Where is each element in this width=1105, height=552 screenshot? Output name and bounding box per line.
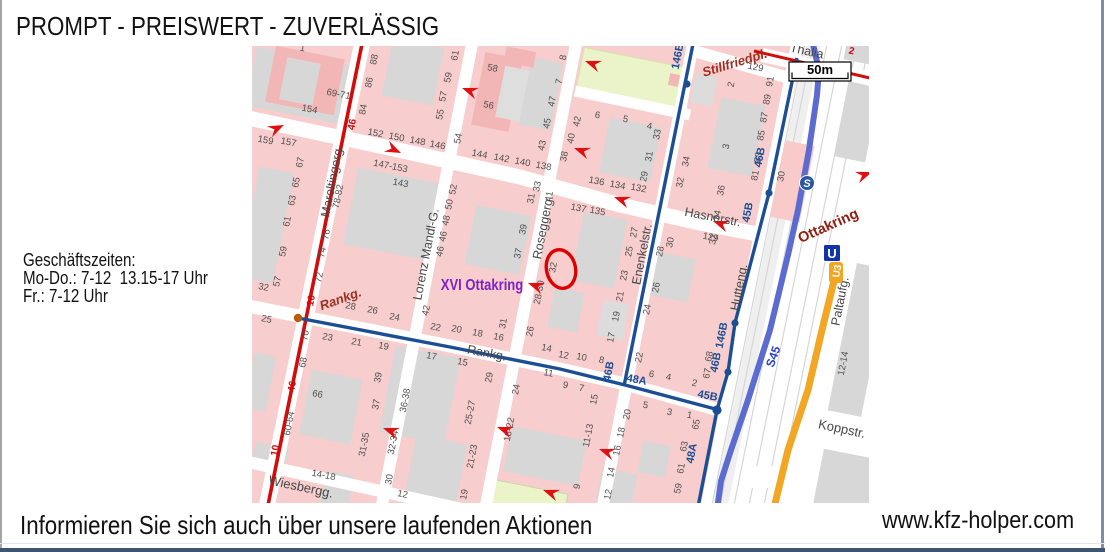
svg-text:32: 32 (547, 261, 560, 273)
svg-text:61: 61 (449, 49, 462, 61)
svg-text:25: 25 (260, 313, 272, 326)
svg-text:37: 37 (370, 398, 383, 410)
svg-text:14: 14 (605, 466, 618, 478)
svg-text:30: 30 (775, 170, 788, 182)
svg-text:31: 31 (643, 150, 656, 162)
svg-text:42: 42 (571, 115, 584, 127)
svg-text:39: 39 (517, 223, 530, 235)
svg-text:91: 91 (764, 75, 777, 87)
svg-text:76: 76 (320, 228, 333, 240)
svg-text:20: 20 (621, 408, 634, 420)
svg-text:68: 68 (297, 356, 310, 368)
svg-text:11: 11 (543, 367, 555, 380)
svg-text:34: 34 (680, 155, 693, 167)
svg-text:57: 57 (437, 90, 450, 102)
svg-text:48: 48 (440, 214, 453, 226)
svg-text:12: 12 (396, 488, 408, 501)
svg-text:24: 24 (641, 303, 654, 315)
svg-text:16: 16 (611, 444, 624, 456)
svg-text:46: 46 (434, 245, 447, 257)
svg-text:37: 37 (512, 247, 525, 259)
svg-text:87: 87 (758, 111, 771, 123)
svg-text:39: 39 (372, 371, 385, 383)
svg-text:72: 72 (313, 271, 326, 283)
svg-text:55: 55 (434, 108, 447, 120)
svg-text:19: 19 (377, 340, 389, 353)
svg-text:22: 22 (429, 321, 441, 334)
svg-text:58: 58 (486, 62, 498, 75)
svg-text:67: 67 (294, 156, 307, 168)
svg-text:33: 33 (531, 180, 544, 192)
svg-text:38: 38 (558, 150, 571, 162)
svg-text:31: 31 (525, 192, 538, 204)
svg-text:85: 85 (755, 129, 768, 141)
svg-text:24: 24 (388, 311, 400, 324)
svg-text:17: 17 (425, 350, 437, 363)
svg-text:33: 33 (651, 128, 664, 140)
svg-text:20: 20 (450, 323, 462, 336)
svg-text:15: 15 (456, 356, 468, 369)
svg-text:56: 56 (482, 99, 494, 112)
svg-text:S: S (803, 178, 811, 190)
svg-text:59: 59 (442, 71, 455, 83)
svg-text:XVI Ottakring: XVI Ottakring (441, 277, 523, 294)
svg-text:21: 21 (350, 336, 362, 349)
svg-text:61: 61 (281, 215, 294, 227)
svg-text:63: 63 (286, 194, 299, 206)
svg-text:26: 26 (366, 304, 378, 317)
svg-text:40: 40 (565, 132, 578, 144)
svg-text:21: 21 (614, 290, 627, 302)
svg-text:23: 23 (321, 331, 333, 344)
svg-text:70: 70 (299, 329, 312, 341)
svg-text:12: 12 (557, 349, 569, 362)
svg-text:16: 16 (492, 331, 504, 344)
svg-text:52: 52 (447, 183, 460, 195)
svg-text:57: 57 (271, 275, 284, 287)
svg-text:19: 19 (610, 310, 623, 322)
svg-text:30: 30 (383, 473, 396, 485)
svg-text:54: 54 (452, 132, 465, 144)
svg-text:42: 42 (420, 304, 433, 316)
svg-text:19: 19 (458, 488, 471, 500)
svg-text:28: 28 (654, 245, 667, 257)
svg-text:15: 15 (588, 393, 601, 405)
svg-text:26: 26 (524, 325, 537, 337)
svg-text:61: 61 (675, 462, 688, 474)
svg-text:66: 66 (311, 388, 323, 401)
svg-text:46: 46 (437, 230, 450, 242)
svg-text:29: 29 (483, 371, 496, 383)
svg-text:45: 45 (541, 117, 554, 129)
svg-text:88: 88 (368, 53, 381, 65)
svg-text:29: 29 (638, 170, 651, 182)
svg-text:24: 24 (510, 383, 523, 395)
svg-text:32: 32 (707, 233, 720, 245)
svg-text:65: 65 (690, 418, 703, 430)
svg-text:14: 14 (540, 342, 552, 355)
svg-text:43: 43 (536, 139, 549, 151)
svg-text:59: 59 (672, 482, 685, 494)
svg-text:36: 36 (715, 184, 728, 196)
svg-text:32: 32 (257, 281, 269, 294)
svg-text:12: 12 (602, 488, 615, 500)
svg-text:47: 47 (546, 95, 559, 107)
svg-text:26: 26 (650, 281, 663, 293)
svg-text:30: 30 (664, 236, 677, 248)
svg-text:U: U (827, 246, 836, 261)
svg-text:65: 65 (290, 176, 303, 188)
svg-text:50: 50 (443, 198, 456, 210)
svg-text:17: 17 (605, 331, 618, 343)
svg-text:89: 89 (761, 93, 774, 105)
svg-text:18: 18 (471, 327, 483, 340)
svg-text:32: 32 (674, 176, 687, 188)
svg-text:59: 59 (277, 245, 290, 257)
svg-text:84: 84 (357, 103, 370, 115)
svg-text:50m: 50m (807, 62, 833, 77)
svg-text:22: 22 (633, 351, 646, 363)
svg-text:74: 74 (316, 246, 329, 258)
svg-text:86: 86 (363, 76, 376, 88)
svg-text:18: 18 (615, 426, 628, 438)
svg-text:31: 31 (497, 317, 510, 329)
svg-text:10: 10 (575, 351, 587, 364)
svg-text:81: 81 (749, 169, 762, 181)
